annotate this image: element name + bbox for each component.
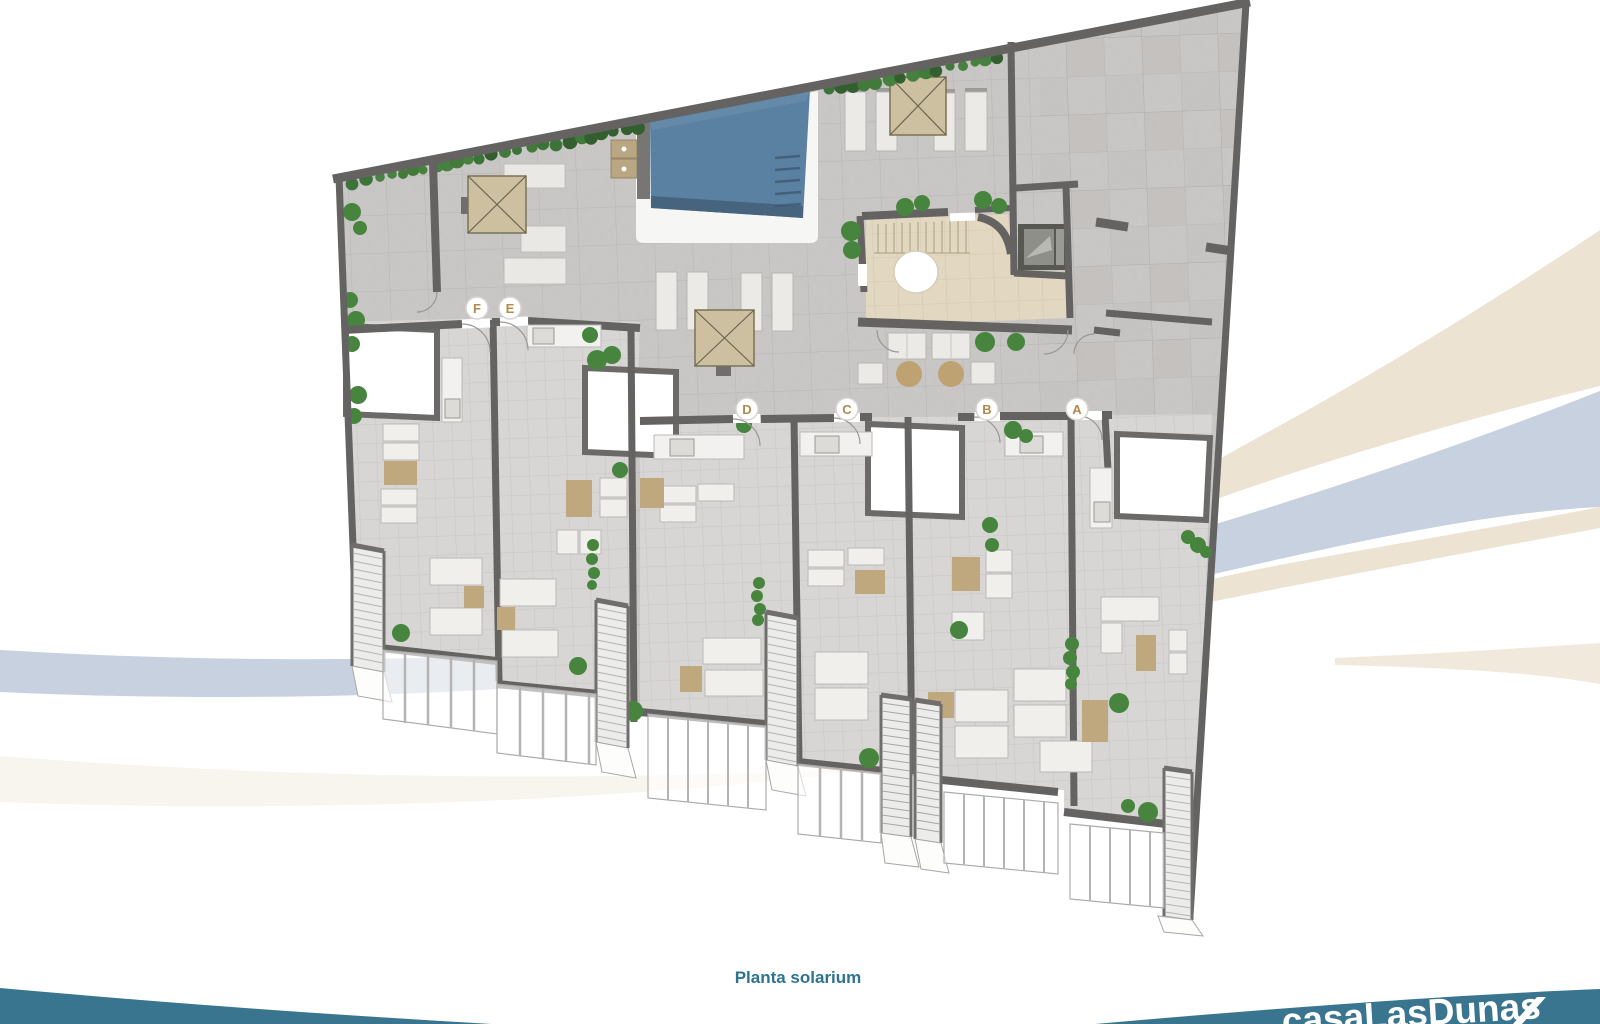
svg-text:F: F bbox=[473, 301, 481, 316]
svg-text:Planta solarium: Planta solarium bbox=[735, 968, 862, 987]
svg-text:E: E bbox=[506, 301, 515, 316]
svg-text:A: A bbox=[1072, 402, 1082, 417]
svg-text:B: B bbox=[982, 402, 991, 417]
svg-text:C: C bbox=[842, 402, 852, 417]
svg-text:D: D bbox=[742, 402, 751, 417]
